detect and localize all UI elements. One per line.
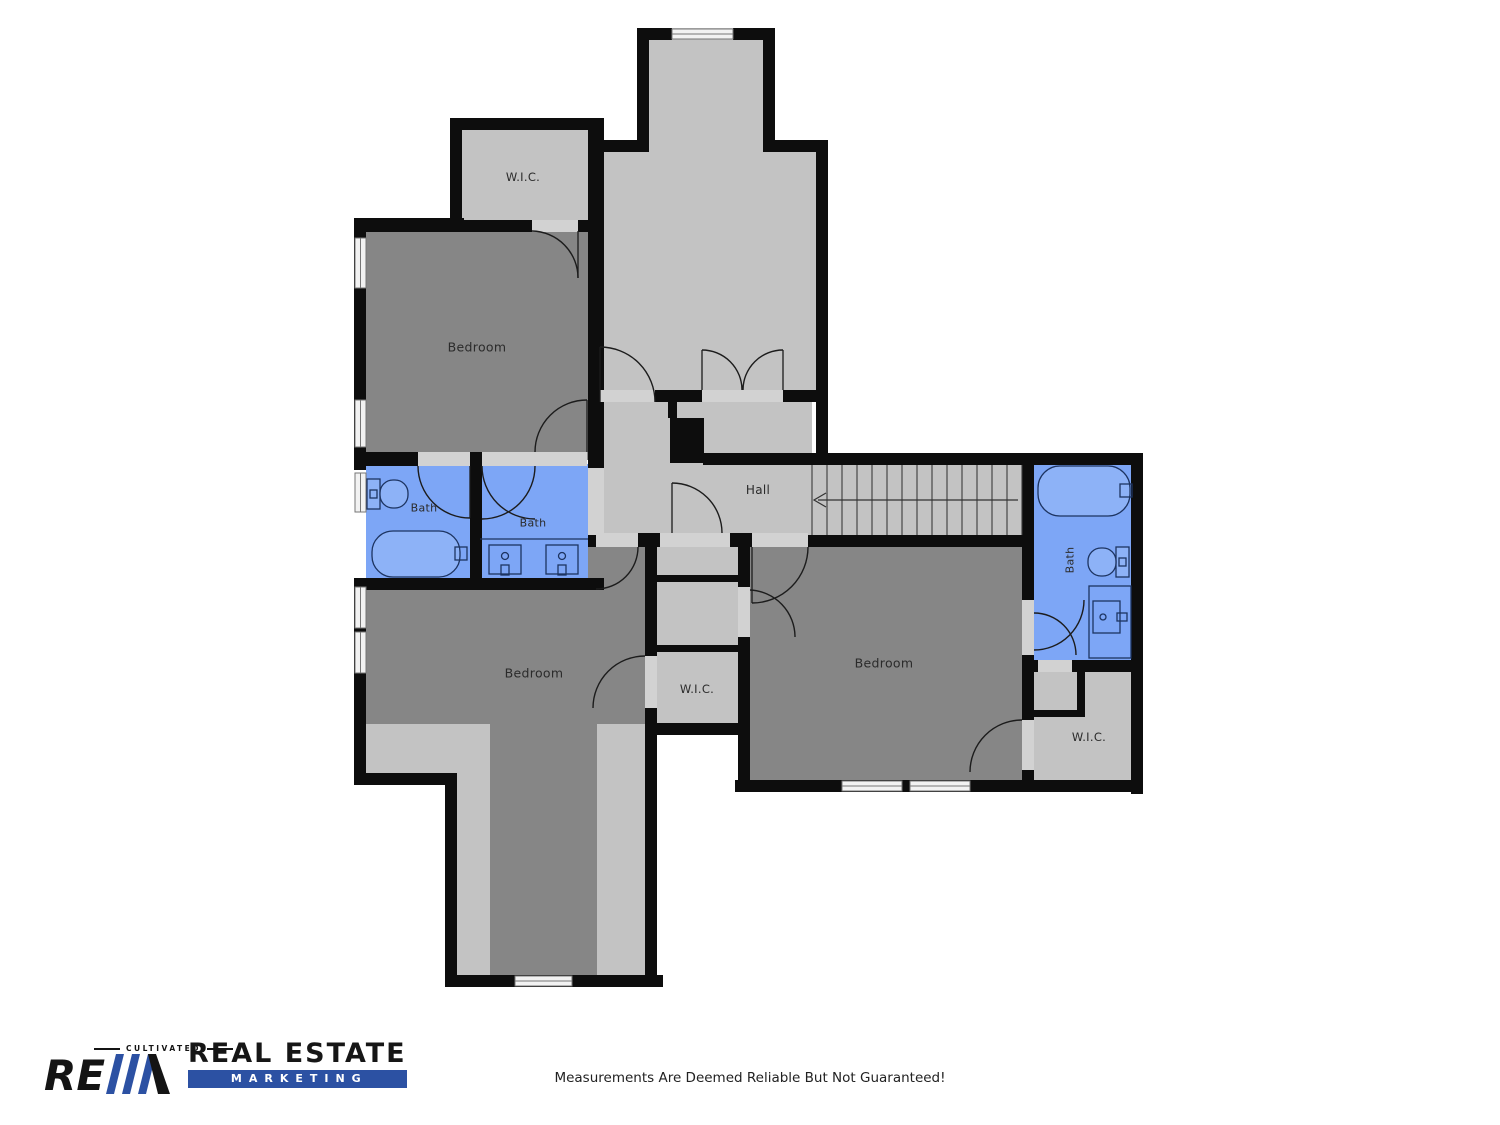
toilet-bowl (380, 480, 408, 508)
disclaimer-text: Measurements Are Deemed Reliable But Not… (0, 1070, 1500, 1086)
room-label-wic-upper-left: W.I.C. (506, 170, 540, 184)
room-label-bedroom-upper-left: Bedroom (448, 340, 507, 355)
room-label-hall: Hall (746, 483, 770, 497)
room-label-bedroom-right: Bedroom (855, 656, 914, 671)
tagline-dash (207, 1048, 233, 1050)
room-label-bedroom-lower-left: Bedroom (505, 666, 564, 681)
toilet-bowl (1088, 548, 1116, 576)
room-label-bath-center: Bath (520, 517, 547, 530)
room-label-wic-lower-right: W.I.C. (1072, 730, 1106, 744)
tagline-dash (94, 1048, 120, 1050)
footer: CULTIVATED RE REAL ESTATE MARKETING Meas… (0, 1030, 1500, 1125)
room-label-bath-left: Bath (411, 502, 438, 515)
floorplan-drawing (0, 0, 1500, 1125)
room-label-bath-right: Bath (1064, 547, 1077, 574)
logo-monogram: CULTIVATED RE (44, 1032, 172, 1096)
brand-logo: CULTIVATED RE REAL ESTATE MARKETING (44, 1032, 407, 1096)
bathtub (1038, 466, 1130, 516)
room-label-wic-center: W.I.C. (680, 682, 714, 696)
floorplan-page: W.I.C.BedroomBathBathHallBedroomW.I.C.Be… (0, 0, 1500, 1125)
bathtub (372, 531, 460, 577)
